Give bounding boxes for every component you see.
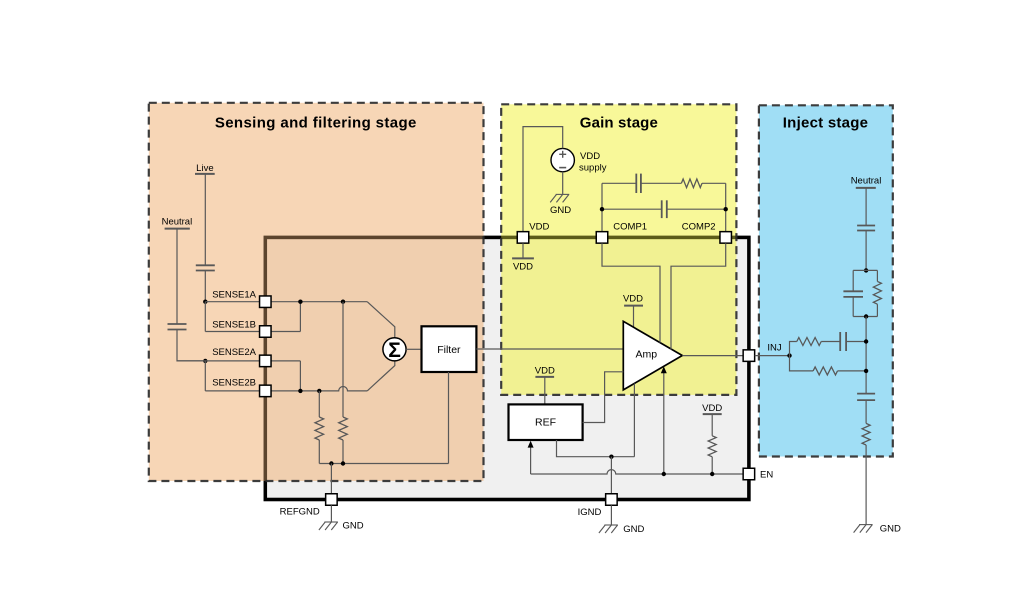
svg-text:Amp: Amp xyxy=(636,349,658,361)
svg-text:SENSE2A: SENSE2A xyxy=(212,347,256,358)
svg-text:REFGND: REFGND xyxy=(280,507,320,518)
svg-text:Σ: Σ xyxy=(388,339,401,362)
svg-text:GND: GND xyxy=(623,524,644,535)
svg-text:INJ: INJ xyxy=(767,343,782,354)
svg-text:SENSE2B: SENSE2B xyxy=(212,377,256,388)
svg-text:VDD: VDD xyxy=(529,222,549,233)
svg-text:SENSE1A: SENSE1A xyxy=(212,290,256,301)
svg-text:Filter: Filter xyxy=(437,344,461,356)
svg-text:COMP2: COMP2 xyxy=(682,222,716,233)
svg-text:VDD: VDD xyxy=(513,261,533,272)
svg-text:VDD: VDD xyxy=(623,294,643,305)
svg-text:COMP1: COMP1 xyxy=(613,222,647,233)
svg-text:GND: GND xyxy=(343,521,364,532)
svg-text:IGND: IGND xyxy=(578,507,602,518)
svg-text:Neutral: Neutral xyxy=(851,175,882,186)
svg-text:VDD: VDD xyxy=(702,403,722,414)
svg-text:supply: supply xyxy=(579,162,607,173)
svg-text:Sensing and filtering stage: Sensing and filtering stage xyxy=(215,115,417,132)
svg-text:GND: GND xyxy=(880,524,901,535)
svg-text:Inject stage: Inject stage xyxy=(783,115,869,132)
svg-text:EN: EN xyxy=(760,470,773,481)
svg-text:SENSE1B: SENSE1B xyxy=(212,319,256,330)
svg-text:VDD: VDD xyxy=(580,151,600,162)
svg-text:GND: GND xyxy=(550,205,571,216)
svg-text:Gain stage: Gain stage xyxy=(580,115,658,132)
svg-text:REF: REF xyxy=(535,417,556,429)
svg-text:Live: Live xyxy=(196,163,213,174)
svg-text:Neutral: Neutral xyxy=(162,217,193,228)
svg-text:VDD: VDD xyxy=(535,366,555,377)
